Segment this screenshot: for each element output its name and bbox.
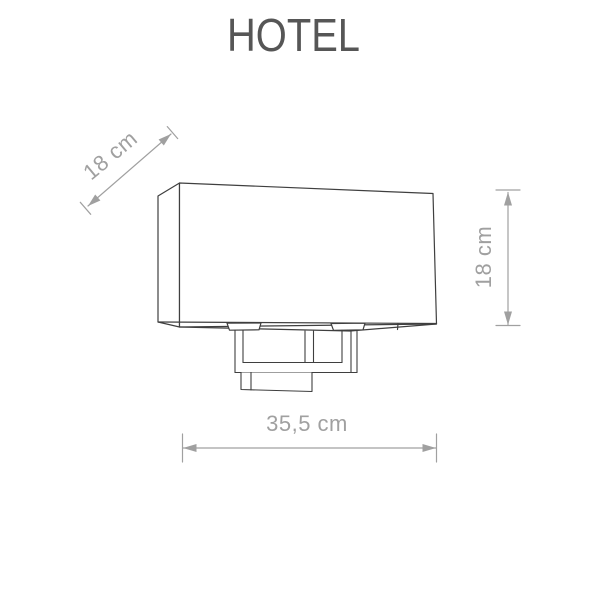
product-title: HOTEL bbox=[227, 9, 360, 61]
width-dimension-label: 35,5 cm bbox=[266, 411, 348, 436]
shade-rim-seam bbox=[398, 324, 399, 330]
shade-left-face bbox=[158, 183, 180, 327]
shade-front-face bbox=[180, 183, 437, 327]
shade-tab-left bbox=[227, 323, 261, 330]
diagram-svg: HOTEL 18 cm bbox=[0, 0, 600, 600]
product-dimension-diagram: HOTEL 18 cm bbox=[0, 0, 600, 600]
mounting-plate bbox=[241, 373, 312, 392]
height-dimension-label: 18 cm bbox=[471, 226, 496, 288]
mounting-plate-outline bbox=[241, 373, 312, 392]
shade-tab-right bbox=[331, 323, 365, 330]
